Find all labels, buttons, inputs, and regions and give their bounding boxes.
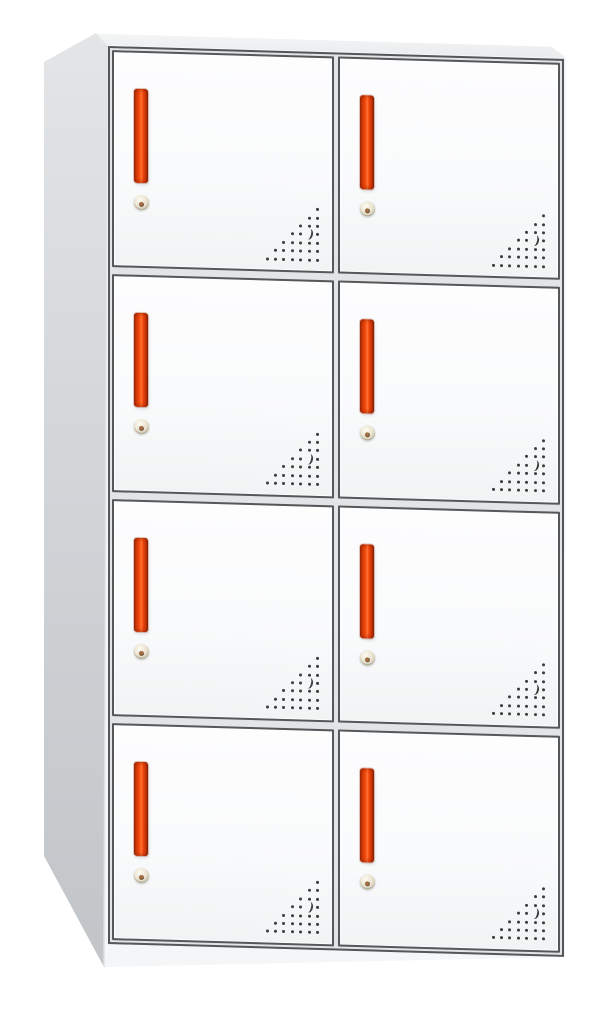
vent-hole [282,706,285,709]
vent-hole [291,681,294,684]
vent-hole [291,258,294,261]
vent-slot-crescent [303,228,313,241]
vent-hole [316,233,319,236]
vent-hole [274,473,277,476]
keyhole-icon [365,881,370,886]
vent-hole [542,447,545,450]
vent-hole [282,473,285,476]
vent-hole [291,698,294,701]
vent-hole [542,231,545,234]
vent-hole [517,704,520,707]
keyhole-lock [134,195,149,210]
locker-door-r2c1 [112,274,334,498]
vent-hole [308,466,311,469]
vent-hole [316,242,319,245]
vent-hole [517,256,520,259]
vent-hole [299,922,302,925]
door-handle [134,89,148,183]
vent-hole [316,931,319,934]
vent-hole [500,936,503,939]
vent-hole [282,241,285,244]
vent-hole [316,699,319,702]
vent-hole [308,441,311,444]
vent-hole [508,488,511,491]
vent-hole [316,707,319,710]
vent-hole [291,249,294,252]
vent-hole [316,665,319,668]
vent-hole [542,481,545,484]
vent-hole [316,458,319,461]
vent-hole [299,449,302,452]
vent-hole [542,223,545,226]
vent-hole [542,887,545,890]
vent-hole [525,264,528,267]
vent-hole [525,480,528,483]
vent-hole [274,922,277,925]
vent-hole [525,688,528,691]
vent-hole [525,929,528,932]
vent-hole [316,449,319,452]
keyhole-icon [139,426,144,431]
vent-hole [274,482,277,485]
vent-hole [517,472,520,475]
vent-hole [299,914,302,917]
vent-hole [299,474,302,477]
vent-hole [534,713,537,716]
vent-hole [508,920,511,923]
vent-hole [308,897,311,900]
vent-hole [299,906,302,909]
door-handle [134,761,148,855]
vent-hole [534,929,537,932]
vent-hole [282,698,285,701]
keyhole-lock [360,201,375,216]
vent-hole [308,449,311,452]
vent-hole [291,241,294,244]
vent-hole [299,690,302,693]
vent-hole [525,912,528,915]
vent-hole [534,455,537,458]
vent-hole [534,705,537,708]
vent-hole [316,466,319,469]
vent-hole [291,457,294,460]
vent-hole [299,673,302,676]
vent-hole [542,265,545,268]
vent-hole [525,231,528,234]
vent-hole [542,439,545,442]
vent-hole [282,465,285,468]
vent-hole [316,217,319,220]
locker-cabinet-photo [0,0,605,1009]
vent-hole [308,250,311,253]
vent-hole [517,912,520,915]
vent-slot-crescent [303,677,313,690]
vent-hole [517,920,520,923]
vent-hole [299,466,302,469]
door-handle [360,319,374,413]
keyhole-lock [134,419,149,434]
vent-hole [282,930,285,933]
vent-hole [291,482,294,485]
vent-hole [525,455,528,458]
vent-hole [299,698,302,701]
vent-hole [500,704,503,707]
door-grid [108,46,564,957]
vent-hole [492,712,495,715]
vent-hole [316,657,319,660]
vent-hole [299,457,302,460]
locker-door-r2c2 [338,281,560,505]
vent-hole [308,673,311,676]
vent-hole [500,488,503,491]
vent-hole [291,931,294,934]
vent-hole [517,480,520,483]
vent-hole [299,897,302,900]
keyhole-lock [134,643,149,658]
ventilation-holes [491,213,545,269]
vent-hole [282,249,285,252]
vent-hole [542,929,545,932]
vent-hole [308,698,311,701]
vent-hole [282,482,285,485]
vent-hole [525,937,528,940]
vent-hole [500,480,503,483]
vent-hole [299,681,302,684]
vent-hole [534,937,537,940]
vent-hole [299,241,302,244]
vent-hole [291,922,294,925]
vent-hole [316,483,319,486]
vent-slot-crescent [303,901,313,914]
vent-hole [308,483,311,486]
keyhole-lock [134,867,149,882]
vent-hole [508,712,511,715]
keyhole-icon [139,202,144,207]
locker-door-r4c2 [338,729,560,953]
vent-hole [266,706,269,709]
vent-hole [517,937,520,940]
vent-hole [308,216,311,219]
vent-hole [525,248,528,251]
vent-hole [525,239,528,242]
keyhole-lock [360,650,375,665]
vent-hole [492,488,495,491]
door-handle [360,95,374,189]
vent-hole [299,707,302,710]
vent-hole [542,680,545,683]
vent-hole [542,671,545,674]
door-handle [134,537,148,631]
ventilation-holes [265,655,319,711]
vent-hole [542,663,545,666]
vent-hole [542,240,545,243]
vent-slot-crescent [529,907,539,920]
vent-hole [534,265,537,268]
vent-hole [291,914,294,917]
vent-hole [291,233,294,236]
vent-hole [542,912,545,915]
vent-hole [500,264,503,267]
vent-hole [492,263,495,266]
vent-hole [291,474,294,477]
vent-hole [500,255,503,258]
vent-hole [508,696,511,699]
keyhole-icon [365,208,370,213]
vent-hole [542,896,545,899]
vent-hole [525,489,528,492]
vent-hole [316,208,319,211]
vent-hole [308,665,311,668]
vent-hole [542,904,545,907]
vent-hole [308,690,311,693]
vent-slot-crescent [529,683,539,696]
vent-hole [534,231,537,234]
vent-hole [525,904,528,907]
vent-hole [274,697,277,700]
vent-hole [534,489,537,492]
vent-hole [291,690,294,693]
vent-hole [274,706,277,709]
vent-hole [525,679,528,682]
vent-hole [517,687,520,690]
vent-hole [316,898,319,901]
ventilation-holes [491,886,545,942]
vent-hole [308,914,311,917]
vent-hole [282,689,285,692]
vent-hole [534,481,537,484]
vent-hole [525,705,528,708]
locker-door-r3c1 [112,499,334,723]
vent-hole [517,713,520,716]
keyhole-icon [365,433,370,438]
ventilation-holes [265,207,319,263]
ventilation-holes [491,662,545,718]
vent-hole [542,921,545,924]
door-handle [360,544,374,638]
vent-hole [534,671,537,674]
vent-hole [525,920,528,923]
vent-hole [282,258,285,261]
vent-hole [316,889,319,892]
vent-hole [308,889,311,892]
vent-hole [291,706,294,709]
vent-hole [299,250,302,253]
vent-hole [517,488,520,491]
vent-hole [308,707,311,710]
vent-hole [299,482,302,485]
vent-hole [266,257,269,260]
keyhole-icon [365,657,370,662]
vent-hole [308,225,311,228]
vent-hole [542,257,545,260]
vent-hole [291,465,294,468]
vent-hole [316,225,319,228]
vent-hole [266,481,269,484]
vent-hole [525,696,528,699]
vent-hole [525,713,528,716]
vent-hole [534,472,537,475]
door-handle [134,313,148,407]
vent-hole [308,474,311,477]
vent-hole [542,215,545,218]
vent-hole [517,247,520,250]
vent-hole [308,241,311,244]
vent-hole [517,929,520,932]
vent-hole [508,471,511,474]
vent-hole [542,705,545,708]
vent-hole [508,264,511,267]
vent-hole [274,930,277,933]
vent-hole [299,233,302,236]
vent-hole [517,463,520,466]
vent-hole [308,931,311,934]
vent-hole [282,914,285,917]
door-handle [360,768,374,862]
vent-hole [534,895,537,898]
vent-hole [308,258,311,261]
vent-hole [316,906,319,909]
vent-hole [534,680,537,683]
keyhole-icon [139,650,144,655]
vent-hole [299,224,302,227]
vent-slot-crescent [529,459,539,472]
vent-hole [525,463,528,466]
vent-hole [500,712,503,715]
ventilation-holes [265,879,319,935]
vent-hole [508,247,511,250]
vent-hole [542,697,545,700]
keyhole-lock [360,874,375,889]
vent-hole [525,472,528,475]
locker-door-r3c2 [338,505,560,729]
vent-hole [299,931,302,934]
vent-hole [316,432,319,435]
vent-hole [534,921,537,924]
locker-door-r1c1 [112,50,334,274]
ventilation-holes [265,431,319,487]
vent-hole [316,923,319,926]
vent-hole [308,923,311,926]
vent-hole [542,464,545,467]
keyhole-icon [139,875,144,880]
vent-hole [316,250,319,253]
vent-hole [534,904,537,907]
vent-hole [517,264,520,267]
vent-hole [508,928,511,931]
vent-hole [542,456,545,459]
vent-hole [299,258,302,261]
vent-hole [534,696,537,699]
vent-hole [316,441,319,444]
vent-hole [508,704,511,707]
vent-hole [316,474,319,477]
vent-hole [274,257,277,260]
vent-hole [517,239,520,242]
vent-hole [508,937,511,940]
vent-hole [508,480,511,483]
vent-hole [534,256,537,259]
vent-hole [517,696,520,699]
vent-hole [316,881,319,884]
locker-door-r1c2 [338,57,560,281]
vent-hole [508,256,511,259]
vent-hole [266,930,269,933]
vent-hole [525,256,528,259]
vent-hole [542,489,545,492]
vent-hole [282,922,285,925]
vent-hole [542,472,545,475]
locker-door-r4c1 [112,723,334,947]
vent-hole [274,249,277,252]
vent-hole [534,447,537,450]
vent-hole [291,905,294,908]
vent-hole [542,713,545,716]
vent-slot-crescent [529,235,539,248]
ventilation-holes [491,437,545,493]
vent-hole [542,688,545,691]
vent-hole [316,673,319,676]
vent-hole [316,682,319,685]
vent-hole [542,938,545,941]
vent-hole [316,914,319,917]
vent-hole [542,248,545,251]
vent-hole [492,936,495,939]
vent-hole [534,223,537,226]
vent-hole [316,259,319,262]
vent-hole [316,690,319,693]
vent-hole [534,248,537,251]
vent-slot-crescent [303,452,313,465]
cabinet-side-panel [44,33,107,967]
keyhole-lock [360,425,375,440]
vent-hole [500,928,503,931]
